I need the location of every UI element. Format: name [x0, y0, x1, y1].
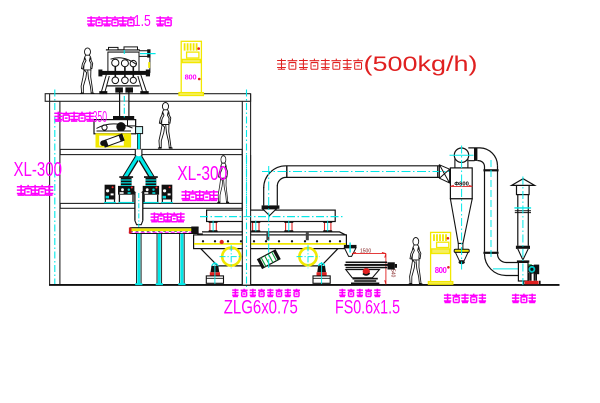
- svg-text:1.5: 1.5: [134, 13, 151, 30]
- svg-text:800: 800: [185, 73, 197, 82]
- svg-text:350: 350: [93, 109, 108, 126]
- svg-text:540: 540: [390, 269, 396, 278]
- svg-text:XL-300: XL-300: [177, 162, 227, 185]
- svg-text:XL-300: XL-300: [14, 158, 63, 181]
- svg-text:800: 800: [435, 266, 448, 275]
- svg-text:ZLG6x0.75: ZLG6x0.75: [224, 298, 298, 319]
- svg-text:(500kg/h): (500kg/h): [364, 52, 478, 76]
- svg-text:1500: 1500: [360, 249, 371, 255]
- svg-text:FS0.6x1.5: FS0.6x1.5: [335, 298, 400, 319]
